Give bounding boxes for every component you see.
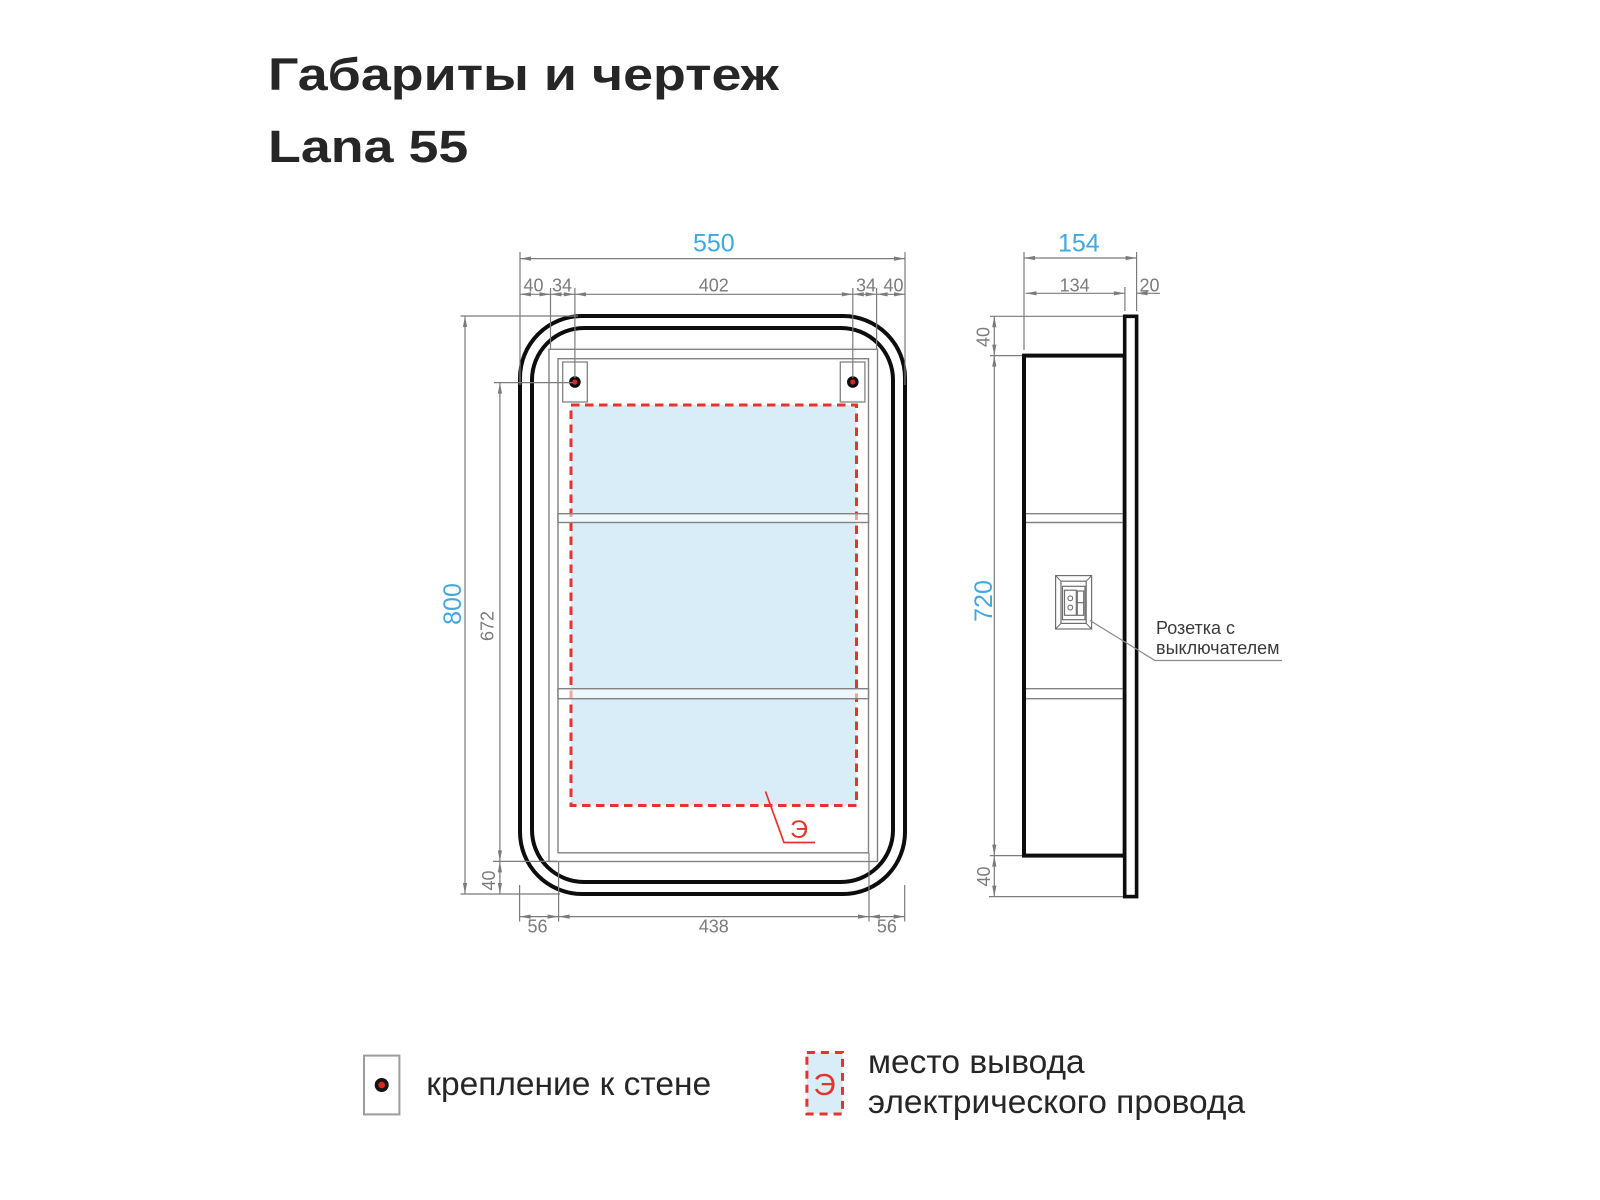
- svg-text:40: 40: [974, 327, 994, 347]
- svg-text:720: 720: [970, 580, 998, 622]
- svg-text:34: 34: [552, 275, 572, 295]
- svg-text:крепление к стене: крепление к стене: [426, 1066, 711, 1103]
- svg-text:438: 438: [699, 917, 729, 937]
- svg-text:Lana 55: Lana 55: [268, 121, 468, 172]
- svg-text:134: 134: [1060, 275, 1090, 295]
- svg-text:40: 40: [523, 275, 543, 295]
- svg-text:40: 40: [883, 275, 903, 295]
- svg-text:402: 402: [699, 275, 729, 295]
- svg-text:34: 34: [856, 275, 876, 295]
- svg-text:электрического провода: электрического провода: [868, 1084, 1245, 1121]
- svg-text:Розетка с: Розетка с: [1156, 618, 1235, 638]
- svg-text:Э: Э: [790, 816, 808, 844]
- svg-text:56: 56: [877, 917, 897, 937]
- svg-text:Габариты и чертеж: Габариты и чертеж: [268, 49, 780, 100]
- svg-text:Э: Э: [813, 1067, 835, 1102]
- svg-text:56: 56: [527, 917, 547, 937]
- svg-text:800: 800: [439, 583, 467, 625]
- svg-text:20: 20: [1139, 275, 1159, 295]
- svg-text:место вывода: место вывода: [868, 1044, 1085, 1081]
- svg-text:672: 672: [478, 611, 498, 641]
- svg-text:выключателем: выключателем: [1156, 638, 1280, 658]
- svg-text:550: 550: [693, 230, 735, 258]
- svg-text:40: 40: [479, 870, 499, 890]
- svg-text:40: 40: [974, 866, 994, 886]
- svg-text:154: 154: [1058, 230, 1100, 258]
